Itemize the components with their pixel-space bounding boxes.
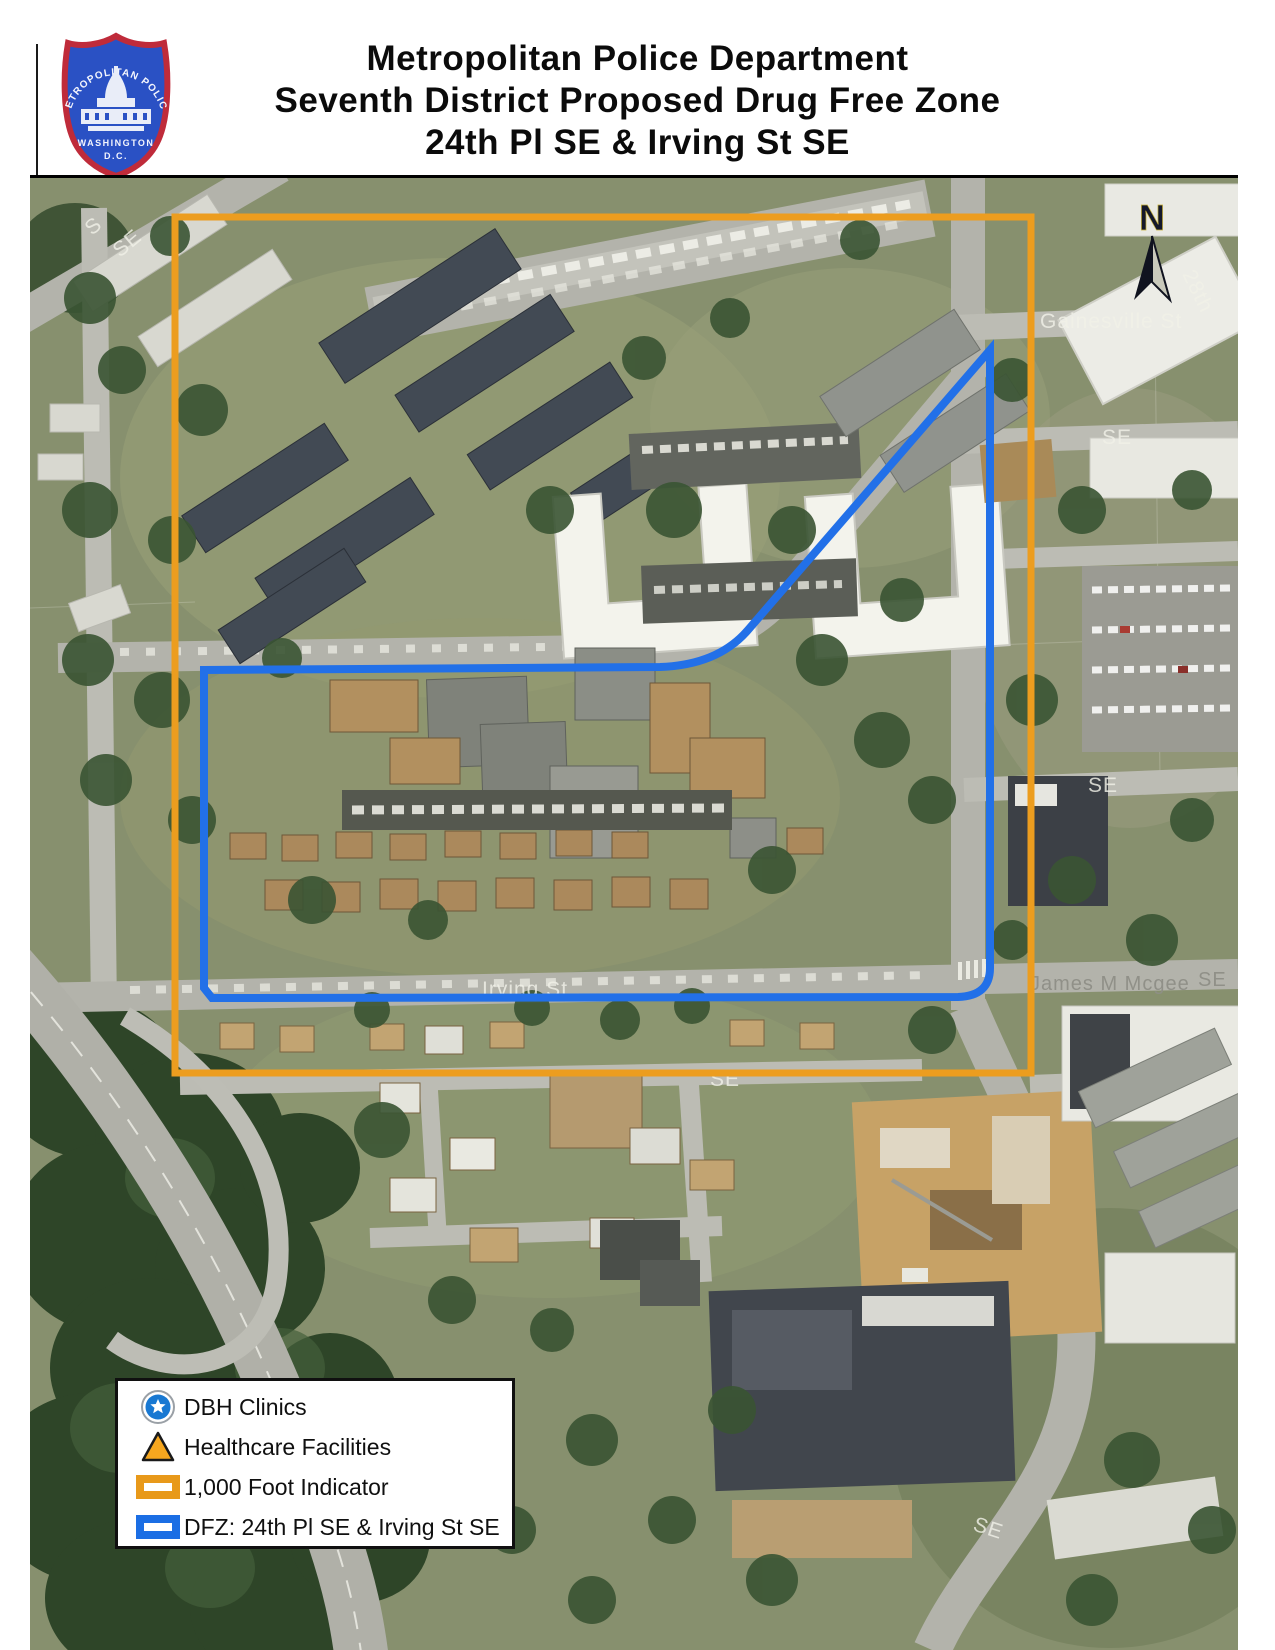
foot-indicator-swatch-icon <box>132 1474 184 1500</box>
title-line-2: Seventh District Proposed Drug Free Zone <box>0 80 1275 122</box>
legend-label-foot-indicator: 1,000 Foot Indicator <box>184 1474 389 1501</box>
title-line-1: Metropolitan Police Department <box>0 38 1275 80</box>
street-label-mcgee: James M Mcgee <box>1030 973 1190 995</box>
street-label-gainesville: Gainesville St <box>1040 310 1182 333</box>
parking-lot-east <box>1082 566 1238 752</box>
healthcare-facility-triangle-icon <box>132 1429 184 1465</box>
north-label: N <box>1139 197 1165 238</box>
legend-row-dbh-clinics: DBH Clinics <box>132 1387 512 1427</box>
page: { "header": { "title_lines": [ "Metropol… <box>0 0 1275 1650</box>
legend: DBH Clinics Healthcare Facilities 1,000 … <box>115 1378 515 1549</box>
street-label-se-upper-right: SE <box>1102 426 1132 449</box>
legend-label-dfz: DFZ: 24th Pl SE & Irving St SE <box>184 1514 500 1541</box>
legend-row-dfz: DFZ: 24th Pl SE & Irving St SE <box>132 1507 512 1547</box>
street-label-mcgee-se: SE <box>1198 969 1227 991</box>
legend-row-healthcare-facilities: Healthcare Facilities <box>132 1427 512 1467</box>
title-line-3: 24th Pl SE & Irving St SE <box>0 122 1275 164</box>
road-right-3 <box>964 551 1238 560</box>
legend-row-foot-indicator: 1,000 Foot Indicator <box>132 1467 512 1507</box>
legend-label-healthcare-facilities: Healthcare Facilities <box>184 1434 391 1461</box>
map-title: Metropolitan Police Department Seventh D… <box>0 38 1275 164</box>
dbh-clinic-marker-icon <box>132 1388 184 1426</box>
legend-label-dbh-clinics: DBH Clinics <box>184 1394 307 1421</box>
street-label-se-mid-right: SE <box>1088 774 1118 797</box>
dfz-swatch-icon <box>132 1514 184 1540</box>
map: Gainesville St 28th SE SE Irving St Jame… <box>30 175 1238 1650</box>
